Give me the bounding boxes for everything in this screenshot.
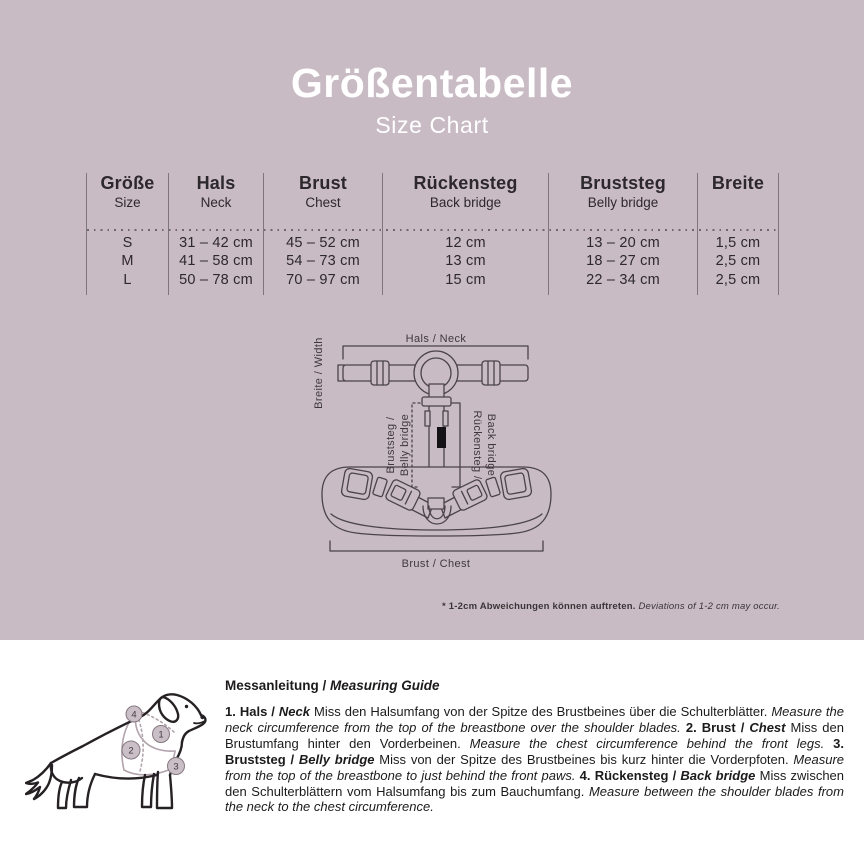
d-ring-wrap: [428, 498, 444, 509]
square-buckle-left: [341, 468, 373, 500]
marker-4-label: 4: [131, 710, 136, 721]
table-cell: 2,5 cm: [698, 252, 779, 270]
back-strap-tab-right: [443, 411, 448, 426]
brand-tag: [437, 427, 446, 448]
column-header-en: Neck: [169, 193, 263, 211]
measuring-guide-body: 1. Hals / Neck Miss den Halsumfang von d…: [225, 704, 844, 815]
dog-tail: [26, 763, 52, 799]
column-header-brust: Brust Chest: [264, 173, 383, 228]
chest-bracket: [330, 541, 543, 551]
page-title: Größentabelle: [0, 60, 864, 107]
page-subtitle: Size Chart: [0, 112, 864, 139]
measuring-guide-panel: 4 1 2 3 Messanleitung / Measuring Guide …: [0, 640, 864, 864]
column-header-de: Rückensteg: [383, 173, 548, 193]
column-header-groesse: Größe Size: [87, 173, 169, 228]
dog-front-leg-near: [157, 772, 172, 808]
size-table: Größe Size Hals Neck Brust Chest Rückens…: [86, 173, 779, 295]
dog-illustration: 4 1 2 3: [25, 687, 220, 819]
column-header-breite: Breite: [698, 173, 779, 228]
table-spacer: [87, 289, 169, 295]
harness-diagram: Hals / Neck Breite / Width Bruststeg / B…: [298, 328, 575, 576]
marker-3-label: 3: [173, 762, 178, 773]
column-header-de: Breite: [698, 173, 778, 193]
column-header-bruststeg: Bruststeg Belly bridge: [549, 173, 698, 228]
dog-harness-belly: [124, 769, 171, 775]
column-header-en: [698, 193, 778, 195]
diagram-label-neck: Hals / Neck: [406, 333, 467, 345]
dog-ear: [159, 697, 178, 722]
table-spacer: [169, 289, 264, 295]
dog-eye: [185, 705, 188, 708]
column-header-en: Belly bridge: [549, 193, 697, 211]
column-header-de: Brust: [264, 173, 382, 193]
dog-harness-girth-back: [137, 715, 143, 771]
dog-front-leg-far: [142, 774, 154, 807]
strap-slider-left: [371, 361, 389, 385]
marker-2-label: 2: [128, 746, 133, 757]
diagram-label-belly-bridge-1: Bruststeg /: [385, 416, 397, 474]
back-strap-tab-left: [425, 411, 430, 426]
column-header-rueckensteg: Rückensteg Back bridge: [383, 173, 549, 228]
table-cell: 13 – 20 cm: [549, 228, 698, 252]
column-header-en: Size: [87, 193, 168, 211]
table-cell: 45 – 52 cm: [264, 228, 383, 252]
table-cell: 12 cm: [383, 228, 549, 252]
marker-1-label: 1: [158, 730, 163, 741]
measuring-guide: Messanleitung / Measuring Guide 1. Hals …: [225, 678, 844, 815]
column-header-de: Hals: [169, 173, 263, 193]
diagram-label-width: Breite / Width: [313, 337, 325, 409]
table-cell: 50 – 78 cm: [169, 271, 264, 289]
table-cell: 13 cm: [383, 252, 549, 270]
table-spacer: [383, 289, 549, 295]
table-cell: 31 – 42 cm: [169, 228, 264, 252]
table-spacer: [264, 289, 383, 295]
column-header-en: Back bridge: [383, 193, 548, 211]
dog-hind-leg-near: [74, 774, 95, 807]
table-spacer: [698, 289, 779, 295]
dog-nose: [200, 715, 204, 719]
table-cell: 1,5 cm: [698, 228, 779, 252]
table-cell: 22 – 34 cm: [549, 271, 698, 289]
table-cell: 2,5 cm: [698, 271, 779, 289]
table-cell: 15 cm: [383, 271, 549, 289]
measuring-guide-heading: Messanleitung / Measuring Guide: [225, 678, 844, 693]
table-cell: 41 – 58 cm: [169, 252, 264, 270]
strap-slider-right: [482, 361, 500, 385]
size-chart-panel: Größentabelle Size Chart Größe Size Hals…: [0, 0, 864, 640]
column-header-hals: Hals Neck: [169, 173, 264, 228]
table-cell: S: [87, 228, 169, 252]
diagram-label-belly-bridge-2: Belly bridge: [399, 414, 411, 476]
table-spacer: [549, 289, 698, 295]
table-cell: 18 – 27 cm: [549, 252, 698, 270]
column-header-de: Größe: [87, 173, 168, 193]
diagram-label-back-bridge-1: Rückensteg /: [471, 410, 483, 480]
table-cell: L: [87, 271, 169, 289]
column-header-en: Chest: [264, 193, 382, 211]
footnote: * 1-2cm Abweichungen können auftreten. D…: [442, 601, 780, 612]
back-strap-slider: [422, 397, 451, 406]
diagram-label-back-bridge-2: Back bridge: [485, 414, 497, 477]
table-cell: M: [87, 252, 169, 270]
header-dotted-separator: [87, 229, 779, 231]
table-cell: 54 – 73 cm: [264, 252, 383, 270]
dog-hind-leg-far: [58, 780, 71, 808]
column-header-de: Bruststeg: [549, 173, 697, 193]
table-cell: 70 – 97 cm: [264, 271, 383, 289]
square-buckle-right: [500, 468, 532, 500]
diagram-label-chest: Brust / Chest: [402, 558, 471, 570]
